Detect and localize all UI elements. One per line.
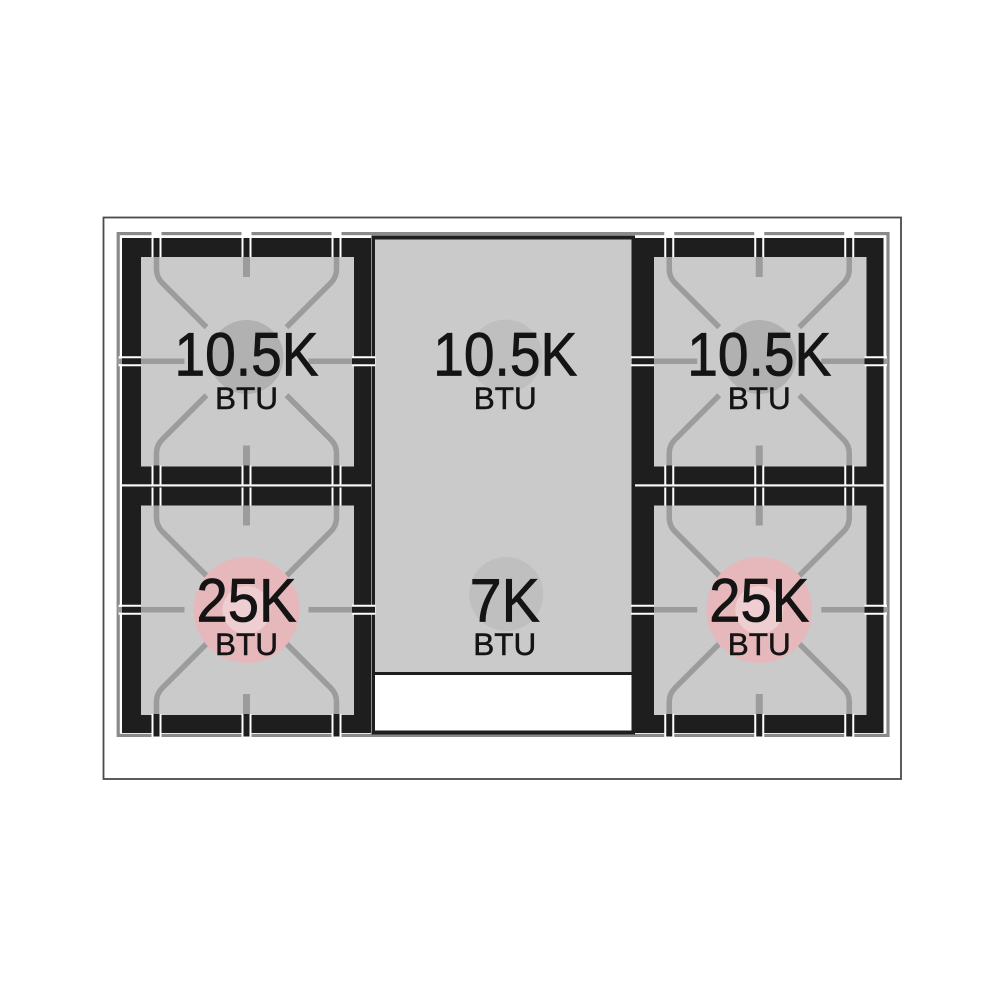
svg-text:BTU: BTU [728,626,791,662]
svg-text:BTU: BTU [474,380,537,416]
svg-text:BTU: BTU [215,626,278,662]
svg-text:25K: 25K [709,567,809,635]
svg-text:7K: 7K [470,567,540,635]
svg-text:25K: 25K [197,567,297,635]
svg-text:BTU: BTU [473,626,536,662]
svg-text:10.5K: 10.5K [175,321,319,389]
svg-text:10.5K: 10.5K [687,321,831,389]
svg-text:BTU: BTU [215,380,278,416]
svg-text:BTU: BTU [728,380,791,416]
svg-text:10.5K: 10.5K [433,321,577,389]
